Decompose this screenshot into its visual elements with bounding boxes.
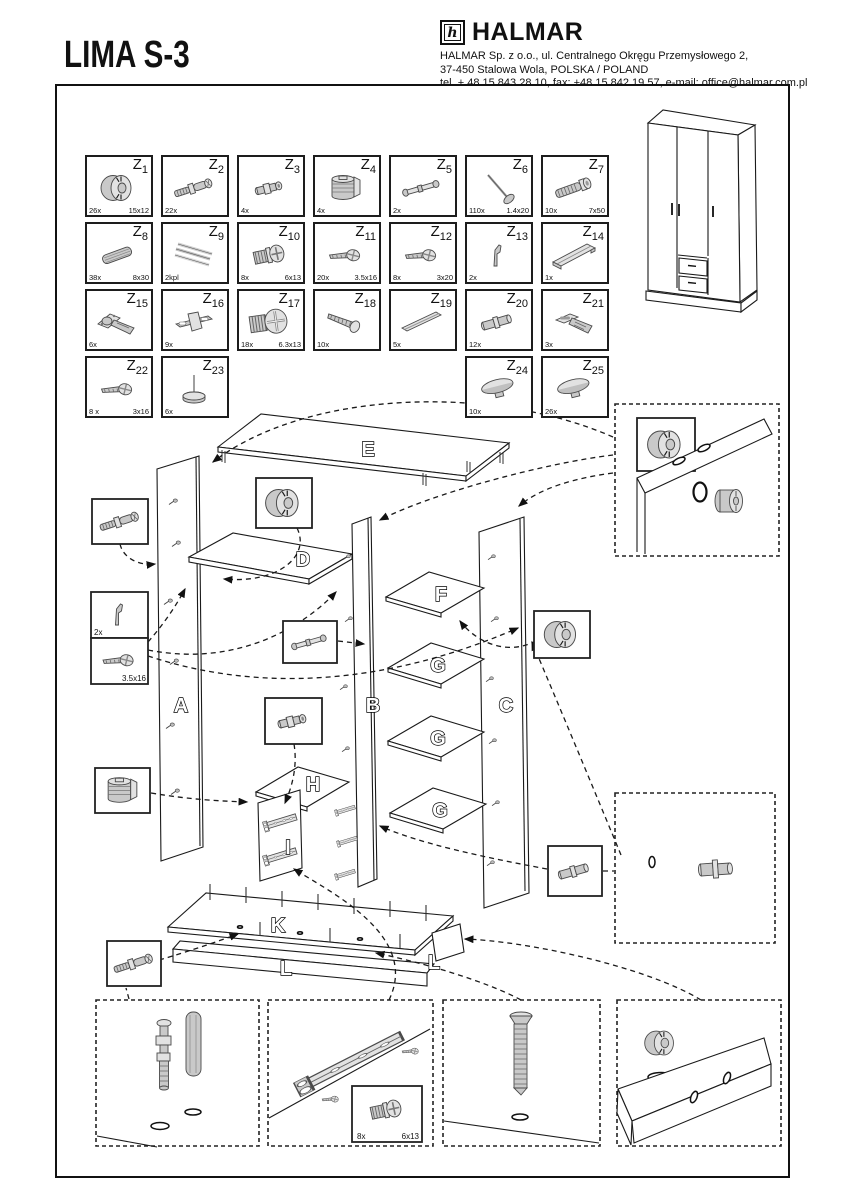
cam-lock-icon: [544, 621, 575, 647]
part-id: Z14: [583, 224, 604, 245]
part-qty: 38x: [89, 273, 101, 282]
drawer-slide-icon: [336, 835, 358, 847]
part-id: Z4: [361, 157, 376, 178]
part-qty: 12x: [469, 340, 481, 349]
detail-box-dowel: [96, 1000, 259, 1147]
part-qty: 6x: [89, 340, 97, 349]
detail-box-cam-top: [615, 404, 779, 556]
part-size: 6x13: [285, 273, 301, 282]
part-qty: 2kpl: [165, 273, 179, 282]
panel-label-l: L: [280, 958, 292, 980]
part-id: Z5: [437, 157, 452, 178]
part-cell: Z156x: [85, 289, 153, 351]
part-cell: Z108x6x13: [237, 222, 305, 284]
part-qty: 110x: [469, 206, 485, 215]
detail-box-shelf-pin: [615, 793, 775, 943]
part-id: Z11: [355, 224, 376, 245]
part-id: Z1: [133, 157, 148, 178]
instruction-sheet: LIMA S-3 h HALMAR HALMAR Sp. z o.o., ul.…: [0, 0, 848, 1200]
part-id: Z16: [203, 291, 224, 312]
part-qty: 1x: [545, 273, 553, 282]
panel-label-f: F: [435, 584, 447, 606]
panel-label-h: H: [306, 774, 320, 796]
part-id: Z10: [279, 224, 300, 245]
panel-label-g: G: [432, 800, 448, 822]
part-cell: Z1120x3.5x16: [313, 222, 381, 284]
detail-box-cam-bottom: [617, 1000, 781, 1146]
cam-housing-icon: [108, 778, 137, 803]
part-id: Z17: [279, 291, 300, 312]
part-cell: Z710x7x50: [541, 155, 609, 217]
part-qty: 9x: [165, 340, 173, 349]
screw-icon: [402, 1045, 419, 1056]
part-cell: Z169x: [161, 289, 229, 351]
callout-qty: 2x: [94, 628, 102, 637]
callout-size: 6x13: [402, 1132, 420, 1141]
part-id: Z20: [507, 291, 528, 312]
part-id: Z13: [507, 224, 528, 245]
part-cell: Z132x: [465, 222, 533, 284]
part-cell: Z52x: [389, 155, 457, 217]
part-cell: Z1810x: [313, 289, 381, 351]
panel-label-a: A: [174, 695, 188, 717]
screw-icon: [322, 1093, 339, 1104]
part-qty: 10x: [545, 206, 557, 215]
part-qty: 6x: [165, 407, 173, 416]
part-qty: 18x: [241, 340, 253, 349]
part-cell: Z195x: [389, 289, 457, 351]
part-qty: 4x: [317, 206, 325, 215]
panel-label-i: I: [285, 837, 291, 859]
part-qty: 10x: [317, 340, 329, 349]
part-id: Z21: [583, 291, 604, 312]
part-size: 8x30: [133, 273, 149, 282]
panel-label-b: B: [366, 695, 380, 717]
part-cell: Z44x: [313, 155, 381, 217]
part-id: Z2: [209, 157, 224, 178]
part-qty: 26x: [545, 407, 557, 416]
part-size: 3x20: [437, 273, 453, 282]
part-qty: 3x: [545, 340, 553, 349]
part-id: Z12: [431, 224, 452, 245]
part-qty: 8 x: [89, 407, 99, 416]
cam-lock-icon: [648, 431, 681, 458]
part-qty: 4x: [241, 206, 249, 215]
part-id: Z8: [133, 224, 148, 245]
part-qty: 2x: [393, 206, 401, 215]
part-cell: Z228 x3x16: [85, 356, 153, 418]
part-cell: Z141x: [541, 222, 609, 284]
part-qty: 8x: [241, 273, 249, 282]
part-cell: Z126x15x12: [85, 155, 153, 217]
detail-box-slide: 8x 6x13: [268, 1000, 433, 1146]
part-id: Z25: [583, 358, 604, 379]
part-qty: 20x: [317, 273, 329, 282]
part-qty: 8x: [393, 273, 401, 282]
part-cell: Z2012x: [465, 289, 533, 351]
panel-label-k: K: [271, 915, 286, 937]
product-thumbnail: [646, 110, 757, 312]
panel-label-l: L: [428, 952, 440, 974]
part-id: Z6: [513, 157, 528, 178]
part-id: Z9: [209, 224, 224, 245]
part-cell: Z1718x6.3x13: [237, 289, 305, 351]
part-qty: 22x: [165, 206, 177, 215]
part-id: Z23: [203, 358, 224, 379]
part-size: 6.3x13: [278, 340, 301, 349]
part-size: 3.5x16: [354, 273, 377, 282]
part-id: Z22: [127, 358, 148, 379]
part-qty: 10x: [469, 407, 481, 416]
part-id: Z24: [507, 358, 528, 379]
panel-label-d: D: [296, 549, 310, 571]
part-cell: Z6110x1.4x20: [465, 155, 533, 217]
part-cell: Z128x3x20: [389, 222, 457, 284]
part-cell: Z92kpl: [161, 222, 229, 284]
callout-size: 3.5x16: [122, 674, 147, 683]
drawer-slide-icon: [334, 868, 356, 880]
part-id: Z19: [431, 291, 452, 312]
part-id: Z18: [355, 291, 376, 312]
part-size: 1.4x20: [506, 206, 529, 215]
callout-qty: 8x: [357, 1132, 365, 1141]
panel-label-g: G: [430, 655, 446, 677]
part-size: 7x50: [589, 206, 605, 215]
cam-lock-icon: [645, 1031, 674, 1055]
part-cell: Z838x8x30: [85, 222, 153, 284]
part-cell: Z34x: [237, 155, 305, 217]
part-qty: 5x: [393, 340, 401, 349]
part-qty: 26x: [89, 206, 101, 215]
detail-box-screw: [443, 1000, 600, 1146]
cam-lock-icon: [266, 489, 299, 516]
panel-label-g: G: [430, 728, 446, 750]
part-cell: Z2410x: [465, 356, 533, 418]
part-id: Z7: [589, 157, 604, 178]
panel-label-e: E: [361, 439, 374, 461]
part-size: 15x12: [129, 206, 149, 215]
part-id: Z3: [285, 157, 300, 178]
part-cell: Z2526x: [541, 356, 609, 418]
panel-label-c: C: [499, 695, 513, 717]
part-size: 3x16: [133, 407, 149, 416]
part-cell: Z236x: [161, 356, 229, 418]
drawer-slide-icon: [334, 804, 356, 816]
part-qty: 2x: [469, 273, 477, 282]
part-id: Z15: [127, 291, 148, 312]
part-cell: Z222x: [161, 155, 229, 217]
parts-legend: Z126x15x12Z222xZ34xZ44xZ52xZ6110x1.4x20Z…: [85, 155, 625, 430]
part-cell: Z213x: [541, 289, 609, 351]
